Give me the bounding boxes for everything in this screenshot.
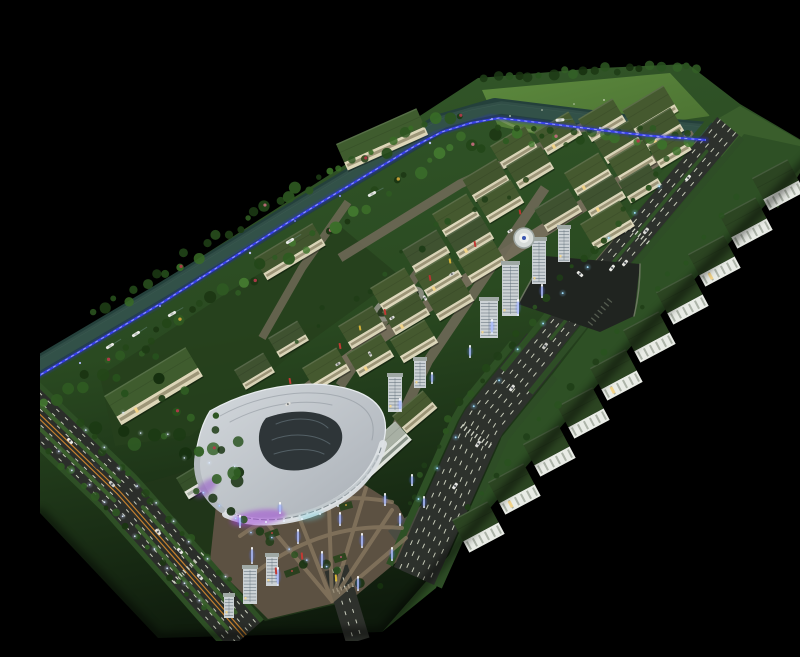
architectural-model-photo [40, 16, 800, 641]
model-photo-frame [40, 16, 800, 641]
rotunda-sign [522, 236, 526, 240]
